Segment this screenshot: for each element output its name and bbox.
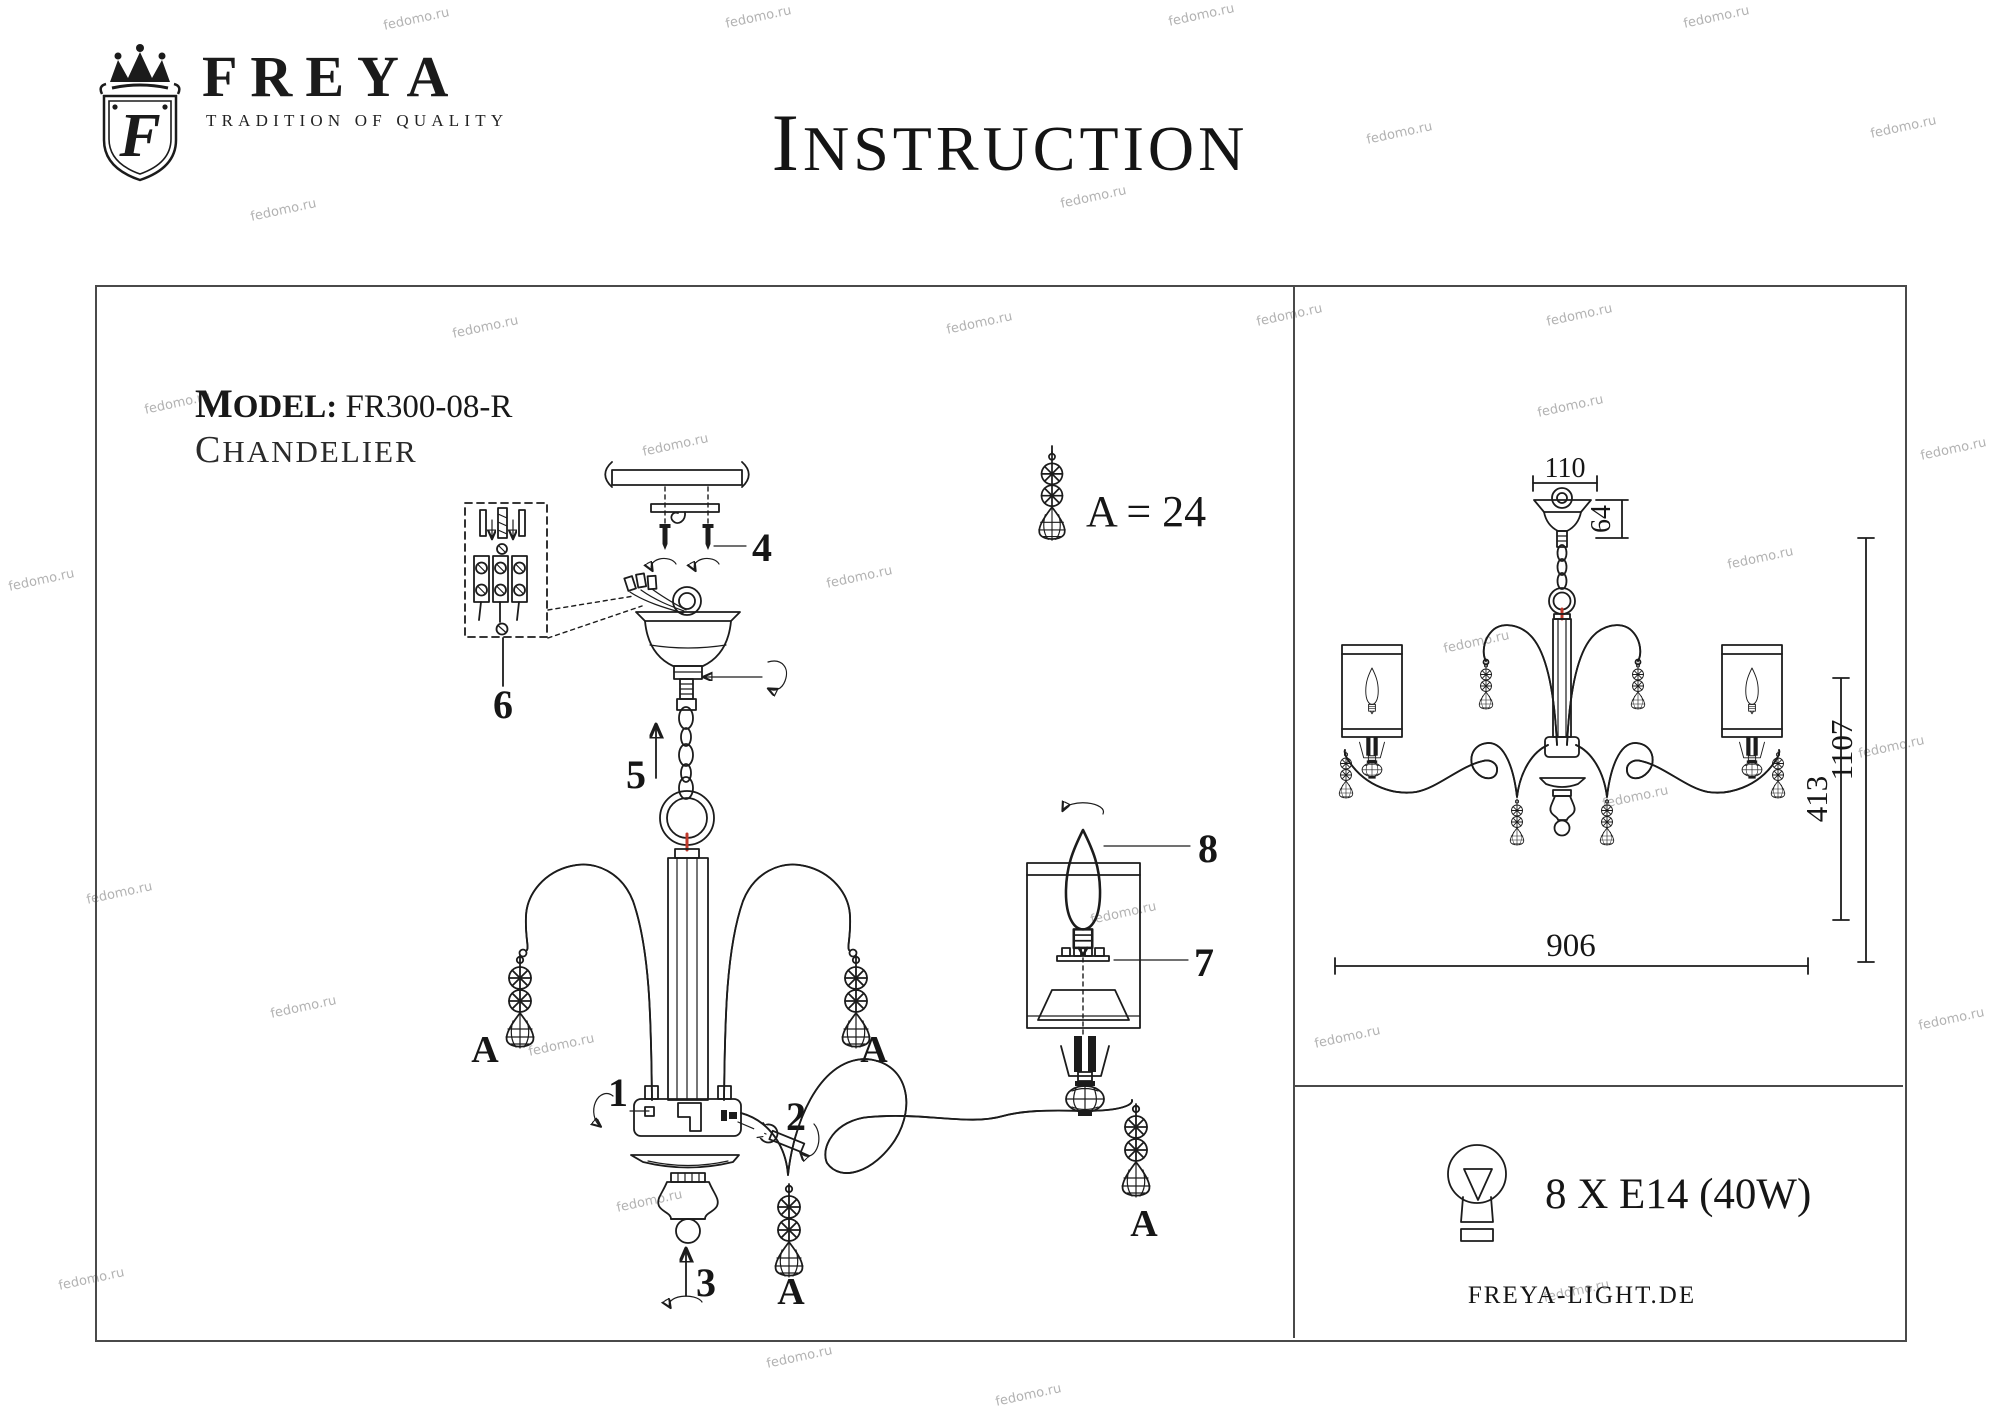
dim-canopy-width: 110: [1533, 453, 1597, 491]
dimension-diagram: 110 64 413 1107 906: [1335, 453, 1874, 974]
callout-3: 3: [696, 1260, 716, 1305]
rp-canopy: [1534, 488, 1591, 547]
diagram-art: 4: [0, 0, 2000, 1414]
rp-hub-finial: [1540, 737, 1585, 836]
bulb-icon: [1448, 1145, 1506, 1241]
dim-body-width: 906: [1335, 928, 1808, 974]
callout-6: 6: [493, 682, 513, 727]
svg-text:906: 906: [1546, 928, 1596, 964]
callout-a: A: [1130, 1203, 1158, 1245]
callout-a: A: [777, 1271, 805, 1313]
legend-pendant: [1039, 446, 1066, 540]
callout-a: A: [471, 1029, 499, 1071]
crystal-pendant: [775, 1184, 803, 1277]
center-column: [668, 858, 708, 1100]
crystal-pendant: [1600, 799, 1614, 846]
shade-detail: [1027, 803, 1140, 1116]
rp-right-side: [1567, 625, 1782, 797]
rotate-arrow-icon: [694, 558, 719, 570]
dim-body-height: 413: [1799, 678, 1849, 920]
crystal-pendant: [1510, 799, 1524, 846]
crystal-pendant: [1122, 1104, 1150, 1197]
bulb-spec: 8 X E14 (40W): [1545, 1171, 1811, 1218]
bulb-spec-block: 8 X E14 (40W) FREYA-LIGHT.DE: [1448, 1145, 1811, 1309]
svg-text:1107: 1107: [1824, 720, 1859, 781]
rp-upper-arm-left: [1484, 625, 1558, 745]
crystal-pendant: [1339, 752, 1353, 799]
hanging-ring: [660, 791, 714, 858]
upper-arm-left: [520, 865, 659, 1100]
center-hub: [634, 1099, 741, 1136]
callout-5: 5: [626, 752, 646, 797]
dim-canopy-height: 64: [1586, 500, 1628, 538]
wire-connector: [624, 573, 686, 613]
website: FREYA-LIGHT.DE: [1468, 1282, 1696, 1309]
rotate-arrow-icon: [651, 558, 676, 570]
canopy: [636, 587, 740, 699]
callout-7: 7: [1194, 940, 1214, 985]
dim-total-height: 1107: [1824, 538, 1874, 962]
lamp-socket: [1061, 1036, 1109, 1116]
rp-chain-ring-column: [1549, 545, 1575, 737]
callout-a: A: [860, 1029, 888, 1071]
crystal-pendant: [1631, 663, 1645, 710]
svg-text:110: 110: [1545, 453, 1586, 484]
ceiling: [605, 462, 749, 487]
crystal-pendant: [506, 955, 534, 1048]
rp-side-shade-left: [1342, 645, 1402, 779]
mounting-screws: [660, 524, 714, 550]
mounting-bracket: [651, 504, 719, 523]
svg-text:64: 64: [1586, 505, 1617, 533]
callout-1: 1: [608, 1070, 628, 1115]
rotate-arrow-icon: [768, 661, 786, 690]
legend-count: A = 24: [1086, 487, 1206, 536]
crystal-pendant: [1479, 663, 1493, 710]
terminal-block-detail: [465, 503, 642, 686]
bottom-finial: [631, 1155, 739, 1243]
crystal-pendant: [1771, 752, 1785, 799]
upper-arm-right: [718, 865, 857, 1100]
callout-4: 4: [752, 525, 772, 570]
callout-8: 8: [1198, 826, 1218, 871]
chain: [677, 699, 696, 799]
assembly-diagram: 4: [465, 446, 1218, 1313]
instruction-sheet: fedomo.rufedomo.rufedomo.rufedomo.rufedo…: [0, 0, 2000, 1414]
svg-text:413: 413: [1799, 776, 1834, 823]
